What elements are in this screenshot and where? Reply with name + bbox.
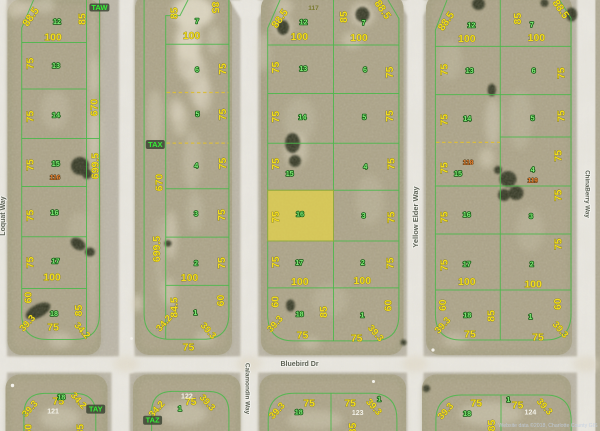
svg-text:13: 13 bbox=[466, 66, 474, 75]
svg-text:18: 18 bbox=[57, 392, 65, 401]
svg-text:75: 75 bbox=[439, 114, 451, 126]
svg-text:Calamondin Way: Calamondin Way bbox=[244, 363, 251, 415]
svg-text:121: 121 bbox=[47, 409, 59, 416]
svg-text:14: 14 bbox=[463, 114, 471, 123]
svg-text:12: 12 bbox=[467, 21, 475, 30]
svg-text:TAY: TAY bbox=[89, 405, 103, 414]
svg-text:75: 75 bbox=[553, 189, 565, 201]
svg-text:4: 4 bbox=[363, 162, 367, 171]
svg-text:699.5: 699.5 bbox=[90, 153, 102, 179]
svg-text:18: 18 bbox=[463, 311, 471, 320]
svg-text:15: 15 bbox=[454, 169, 462, 178]
svg-text:75: 75 bbox=[386, 158, 398, 170]
svg-text:85: 85 bbox=[486, 420, 498, 431]
svg-text:TAX: TAX bbox=[148, 140, 162, 149]
svg-text:4: 4 bbox=[194, 161, 198, 170]
svg-text:7: 7 bbox=[530, 20, 534, 29]
svg-text:75: 75 bbox=[25, 111, 37, 123]
svg-text:75: 75 bbox=[270, 256, 282, 268]
svg-text:75: 75 bbox=[297, 329, 309, 341]
svg-text:TAW: TAW bbox=[91, 3, 108, 12]
svg-text:100: 100 bbox=[524, 279, 542, 291]
svg-text:13: 13 bbox=[299, 64, 307, 73]
svg-text:116: 116 bbox=[50, 175, 61, 182]
svg-text:Yellow Elder Way: Yellow Elder Way bbox=[411, 185, 420, 247]
svg-text:16: 16 bbox=[463, 210, 471, 219]
svg-text:3: 3 bbox=[362, 211, 366, 220]
svg-text:5: 5 bbox=[362, 113, 366, 122]
svg-text:75: 75 bbox=[217, 158, 229, 170]
svg-text:100: 100 bbox=[44, 32, 62, 44]
svg-text:6: 6 bbox=[195, 65, 199, 74]
svg-text:124: 124 bbox=[525, 409, 537, 416]
svg-text:85: 85 bbox=[347, 423, 359, 431]
svg-text:Bluebird Dr: Bluebird Dr bbox=[280, 361, 318, 368]
svg-text:60: 60 bbox=[269, 296, 281, 308]
svg-text:1: 1 bbox=[193, 308, 197, 317]
svg-text:16: 16 bbox=[296, 209, 304, 218]
svg-text:85: 85 bbox=[485, 310, 497, 322]
svg-text:75: 75 bbox=[470, 397, 482, 409]
svg-text:75: 75 bbox=[556, 110, 568, 122]
svg-text:75: 75 bbox=[217, 109, 229, 121]
svg-text:85: 85 bbox=[76, 13, 88, 25]
svg-text:85: 85 bbox=[209, 2, 221, 14]
svg-text:85: 85 bbox=[338, 11, 350, 23]
svg-text:Website data ©2018, Charlotte: Website data ©2018, Charlotte County GIS bbox=[498, 422, 598, 429]
svg-text:100: 100 bbox=[354, 275, 372, 287]
svg-text:17: 17 bbox=[463, 259, 471, 268]
svg-text:75: 75 bbox=[439, 211, 451, 223]
svg-text:85: 85 bbox=[318, 306, 330, 318]
svg-text:75: 75 bbox=[270, 211, 282, 223]
svg-text:1: 1 bbox=[529, 312, 533, 321]
svg-text:60: 60 bbox=[437, 299, 449, 311]
svg-text:1: 1 bbox=[178, 404, 182, 413]
svg-text:18: 18 bbox=[296, 310, 304, 319]
svg-text:85: 85 bbox=[73, 305, 85, 317]
svg-text:75: 75 bbox=[439, 259, 451, 271]
svg-text:100: 100 bbox=[181, 272, 199, 284]
svg-text:100: 100 bbox=[458, 33, 476, 45]
svg-text:75: 75 bbox=[25, 159, 37, 171]
svg-text:60: 60 bbox=[552, 298, 564, 310]
svg-text:3: 3 bbox=[529, 211, 533, 220]
svg-text:75: 75 bbox=[25, 210, 37, 222]
svg-text:75: 75 bbox=[344, 398, 356, 410]
svg-text:75: 75 bbox=[216, 209, 228, 221]
svg-text:3: 3 bbox=[194, 209, 198, 218]
svg-text:75: 75 bbox=[532, 332, 544, 344]
svg-text:12: 12 bbox=[53, 17, 61, 26]
svg-text:TAZ: TAZ bbox=[146, 416, 160, 425]
svg-text:100: 100 bbox=[350, 32, 368, 44]
svg-text:123: 123 bbox=[352, 410, 364, 417]
svg-text:100: 100 bbox=[528, 32, 546, 44]
svg-text:18: 18 bbox=[295, 407, 303, 416]
svg-text:5: 5 bbox=[196, 110, 200, 119]
svg-text:60: 60 bbox=[215, 295, 227, 307]
svg-text:14: 14 bbox=[298, 112, 306, 121]
svg-text:2: 2 bbox=[194, 258, 198, 267]
svg-text:7: 7 bbox=[195, 17, 199, 26]
svg-text:12: 12 bbox=[300, 18, 308, 27]
svg-text:75: 75 bbox=[216, 257, 228, 269]
svg-text:2: 2 bbox=[361, 258, 365, 267]
svg-text:75: 75 bbox=[270, 111, 282, 123]
svg-text:2: 2 bbox=[530, 259, 534, 268]
svg-text:60: 60 bbox=[383, 300, 395, 312]
svg-text:6: 6 bbox=[363, 65, 367, 74]
svg-text:75: 75 bbox=[25, 58, 37, 70]
svg-text:75: 75 bbox=[270, 62, 282, 74]
svg-text:75: 75 bbox=[439, 64, 451, 76]
svg-text:75: 75 bbox=[217, 63, 229, 75]
svg-text:75: 75 bbox=[303, 398, 315, 410]
svg-text:75: 75 bbox=[553, 150, 565, 162]
svg-text:75: 75 bbox=[464, 328, 476, 340]
svg-text:670: 670 bbox=[89, 99, 101, 117]
svg-text:75: 75 bbox=[556, 67, 568, 79]
svg-text:1: 1 bbox=[377, 394, 381, 403]
svg-text:6: 6 bbox=[532, 66, 536, 75]
svg-text:15: 15 bbox=[286, 169, 294, 178]
svg-text:1: 1 bbox=[506, 395, 510, 404]
svg-text:118: 118 bbox=[463, 160, 474, 167]
svg-text:75: 75 bbox=[439, 162, 451, 174]
svg-text:75: 75 bbox=[512, 399, 524, 411]
svg-text:85: 85 bbox=[169, 7, 181, 19]
svg-text:18: 18 bbox=[463, 409, 471, 418]
svg-text:1: 1 bbox=[360, 311, 364, 320]
svg-text:75: 75 bbox=[553, 238, 565, 250]
svg-text:16: 16 bbox=[51, 208, 59, 217]
svg-text:75: 75 bbox=[47, 322, 59, 334]
svg-text:75: 75 bbox=[25, 257, 37, 269]
svg-text:13: 13 bbox=[52, 61, 60, 70]
svg-text:Loquat Way: Loquat Way bbox=[0, 196, 7, 236]
svg-text:75: 75 bbox=[384, 110, 396, 122]
svg-text:119: 119 bbox=[527, 177, 538, 184]
svg-text:100: 100 bbox=[291, 31, 309, 43]
svg-text:85: 85 bbox=[75, 424, 87, 431]
svg-text:15: 15 bbox=[52, 159, 60, 168]
svg-text:75: 75 bbox=[351, 333, 363, 345]
svg-text:84.5: 84.5 bbox=[169, 297, 181, 318]
svg-text:100: 100 bbox=[291, 276, 309, 288]
svg-text:75: 75 bbox=[384, 66, 396, 78]
svg-text:18: 18 bbox=[50, 309, 58, 318]
svg-text:14: 14 bbox=[52, 111, 60, 120]
svg-text:17: 17 bbox=[295, 258, 303, 267]
svg-text:75: 75 bbox=[183, 342, 195, 354]
svg-text:699.5: 699.5 bbox=[151, 236, 163, 262]
svg-text:117: 117 bbox=[308, 5, 319, 12]
svg-text:100: 100 bbox=[43, 272, 61, 284]
svg-text:75: 75 bbox=[386, 211, 398, 223]
svg-text:100: 100 bbox=[458, 276, 476, 288]
svg-text:122: 122 bbox=[181, 393, 193, 400]
svg-text:60: 60 bbox=[23, 424, 35, 431]
svg-text:ChinaBerry Way: ChinaBerry Way bbox=[584, 170, 591, 218]
svg-text:60: 60 bbox=[23, 292, 35, 304]
svg-text:670: 670 bbox=[154, 174, 166, 192]
svg-text:17: 17 bbox=[52, 257, 60, 266]
svg-text:100: 100 bbox=[183, 30, 201, 42]
svg-text:4: 4 bbox=[531, 165, 535, 174]
svg-text:75: 75 bbox=[270, 158, 282, 170]
svg-text:5: 5 bbox=[531, 114, 535, 123]
svg-text:85: 85 bbox=[512, 13, 524, 25]
svg-text:7: 7 bbox=[362, 18, 366, 27]
svg-text:75: 75 bbox=[384, 257, 396, 269]
